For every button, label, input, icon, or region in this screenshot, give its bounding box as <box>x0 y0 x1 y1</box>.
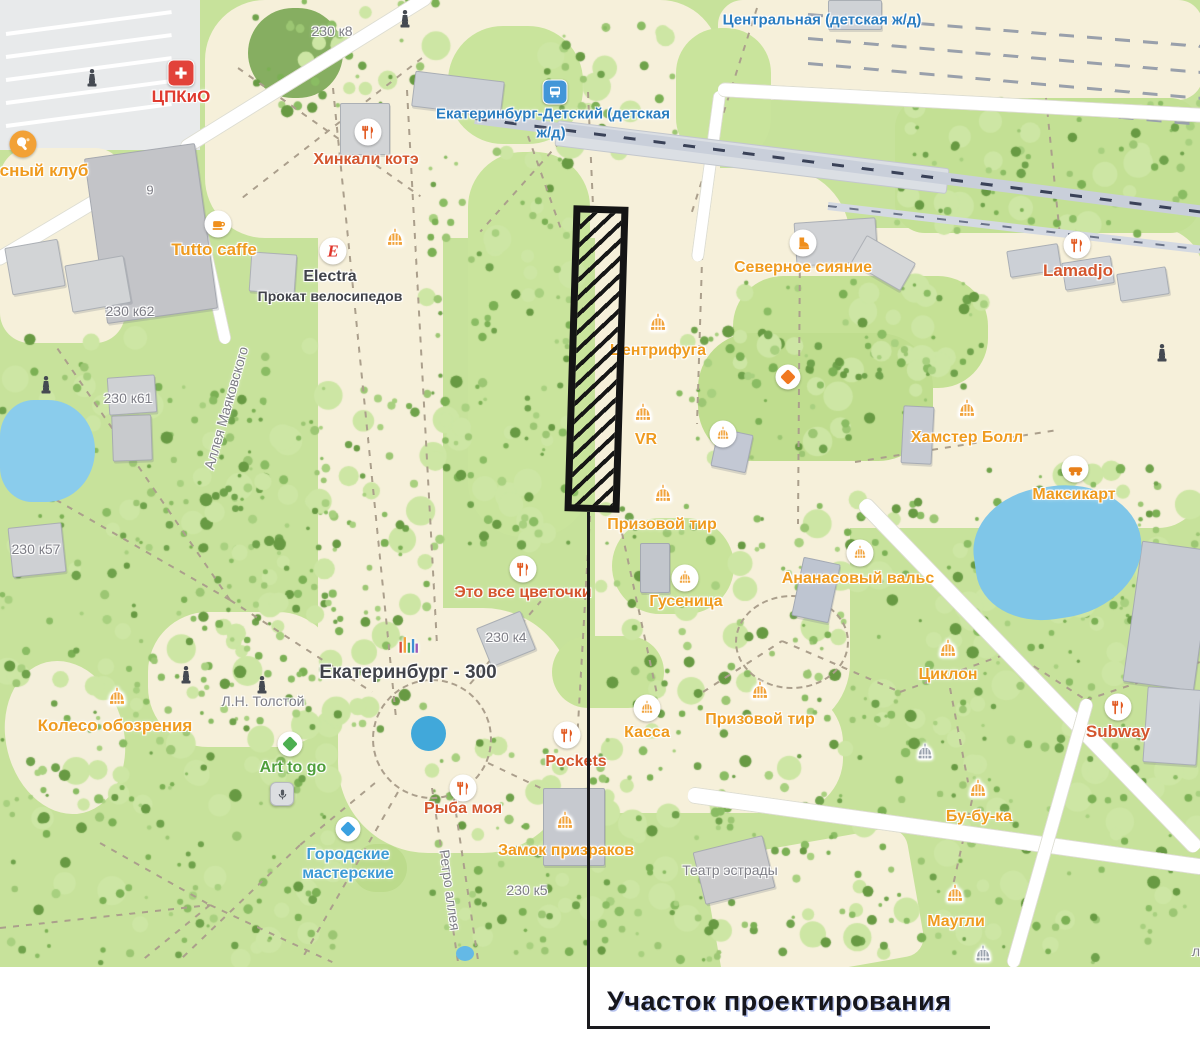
map-label[interactable]: Гусеница <box>649 593 722 611</box>
fork-icon[interactable] <box>510 556 537 583</box>
map-label[interactable]: сный клуб <box>0 161 88 181</box>
map-label: л <box>1192 943 1200 959</box>
diamond-blue-icon[interactable] <box>336 817 361 842</box>
building <box>111 414 153 461</box>
map-label[interactable]: Electra <box>303 268 356 286</box>
building <box>4 239 66 296</box>
boot-icon[interactable] <box>790 230 817 257</box>
fork-icon[interactable] <box>1064 232 1091 259</box>
mic-icon <box>270 782 294 806</box>
carousel-gray-icon <box>973 944 994 967</box>
fork-icon[interactable] <box>1105 694 1132 721</box>
map-label[interactable]: VR <box>635 431 657 449</box>
pond <box>0 400 95 502</box>
project-site-marker[interactable] <box>564 205 628 512</box>
coffee-icon[interactable] <box>205 211 232 238</box>
map-label[interactable]: Хинкали котэ <box>313 151 418 169</box>
carousel-icon[interactable] <box>937 638 960 666</box>
map-label[interactable]: ж/д) <box>536 125 565 142</box>
map-label: 230 к61 <box>104 390 153 406</box>
electra-icon[interactable]: Е <box>320 238 347 265</box>
map-label[interactable]: Lamadjo <box>1043 261 1113 281</box>
map-label: Л.Н. Толстой <box>222 693 305 709</box>
map-label[interactable]: Маугли <box>927 913 985 931</box>
map-label[interactable]: Subway <box>1086 722 1150 742</box>
map-label[interactable]: Хамстер Болл <box>911 429 1023 447</box>
map-label[interactable]: Касса <box>624 724 670 742</box>
cpkio-icon[interactable] <box>168 60 195 87</box>
carousel-icon[interactable] <box>652 483 675 511</box>
map-label[interactable]: Замок призраков <box>498 842 634 860</box>
map-label: 230 к8 <box>311 23 352 39</box>
carousel-icon[interactable] <box>956 398 979 426</box>
pond <box>456 946 474 961</box>
map-label: 9 <box>146 183 153 198</box>
pingpong-icon[interactable] <box>10 131 37 158</box>
statue-icon <box>1155 342 1169 362</box>
map-label[interactable]: Колесо обозрения <box>38 716 193 736</box>
carousel-icon[interactable] <box>944 883 967 911</box>
statue-icon <box>85 67 99 87</box>
diamond-orange-icon[interactable] <box>776 365 801 390</box>
statue-icon <box>39 374 53 394</box>
park-map[interactable]: Е ЦПКиОсный клуб230 к8Хинкали котэЕкатер… <box>0 0 1200 967</box>
map-label: 230 к5 <box>506 882 547 898</box>
map-label[interactable]: Призовой тир <box>607 516 717 534</box>
statue-icon <box>255 674 269 694</box>
fork-icon[interactable] <box>355 119 382 146</box>
carousel-icon[interactable] <box>749 680 772 708</box>
fork-icon[interactable] <box>450 775 477 802</box>
map-label: 230 к4 <box>485 629 526 645</box>
map-label[interactable]: Центральная (детская ж/д) <box>723 12 922 29</box>
statue-icon <box>398 8 412 28</box>
carousel-circle-icon[interactable] <box>847 540 874 567</box>
screenshot-root: Е ЦПКиОсный клуб230 к8Хинкали котэЕкатер… <box>0 0 1200 1055</box>
carousel-icon[interactable] <box>384 227 407 255</box>
carousel-circle-icon[interactable] <box>710 421 737 448</box>
carousel-icon[interactable] <box>967 778 990 806</box>
map-label[interactable]: Art to go <box>260 759 327 777</box>
carousel-gray-icon <box>915 742 936 768</box>
carousel-circle-icon[interactable] <box>634 695 661 722</box>
map-label[interactable]: Бу-бу-ка <box>946 808 1012 826</box>
site-callout-label: Участок проектирования <box>607 986 951 1017</box>
building <box>640 543 670 593</box>
carousel-icon[interactable] <box>554 810 577 838</box>
map-label[interactable]: ЦПКиО <box>152 87 211 107</box>
map-label[interactable]: Екатеринбург - 300 <box>319 662 496 684</box>
map-label[interactable]: Городские <box>307 846 390 864</box>
carousel-circle-icon[interactable] <box>672 565 699 592</box>
fork-icon[interactable] <box>554 722 581 749</box>
map-label[interactable]: Pockets <box>545 753 606 771</box>
map-label[interactable]: Максикарт <box>1032 486 1115 504</box>
callout-line-horizontal <box>587 1026 990 1029</box>
kart-icon[interactable] <box>1062 456 1089 483</box>
map-label[interactable]: Екатеринбург-Детский (детская <box>436 106 670 123</box>
map-label[interactable]: Северное сияние <box>734 259 872 277</box>
map-label[interactable]: Рыба моя <box>424 800 502 818</box>
map-label[interactable]: Прокат велосипедов <box>258 288 403 304</box>
diamond-green-icon[interactable] <box>278 732 303 757</box>
statue-icon <box>179 664 193 684</box>
map-label[interactable]: Призовой тир <box>705 711 815 729</box>
map-label[interactable]: мастерские <box>302 865 394 883</box>
carousel-icon[interactable] <box>106 686 129 714</box>
columns-icon[interactable] <box>397 634 419 661</box>
carousel-icon[interactable] <box>632 402 655 430</box>
map-label[interactable]: Ананасовый вальс <box>782 570 935 588</box>
building <box>1142 686 1200 766</box>
map-label: 230 к57 <box>12 541 61 557</box>
map-label[interactable]: Tutto caffe <box>171 240 257 260</box>
map-label[interactable]: Это все цветочки <box>454 584 591 602</box>
transit-icon[interactable] <box>543 80 568 105</box>
map-label: 230 к62 <box>106 303 155 319</box>
carousel-icon[interactable] <box>647 312 670 340</box>
map-label: Театр эстрады <box>682 862 777 878</box>
pond <box>411 716 446 751</box>
map-label[interactable]: Циклон <box>918 666 977 684</box>
